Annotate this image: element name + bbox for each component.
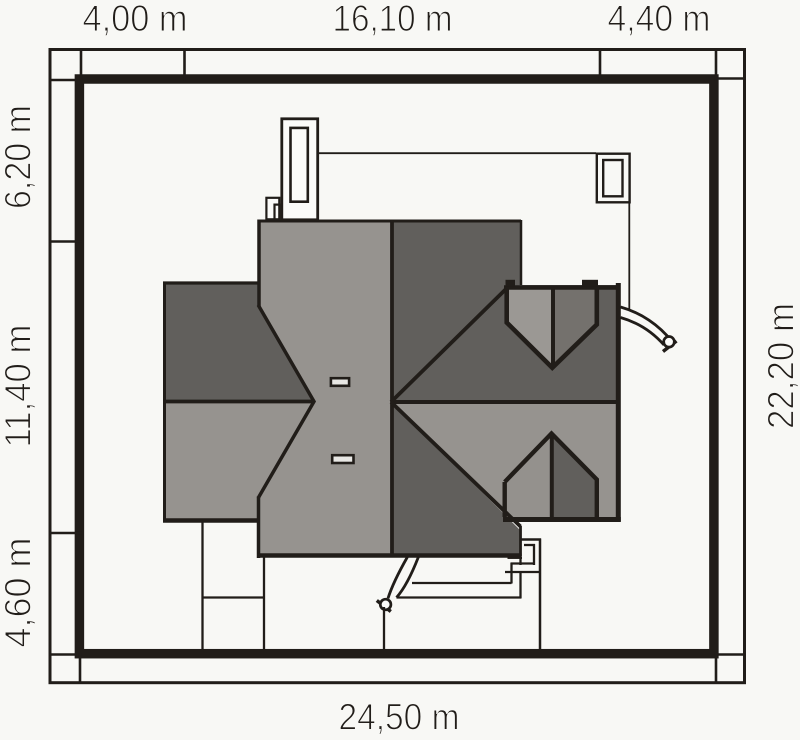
svg-text:4,60 m: 4,60 m bbox=[0, 538, 39, 648]
svg-text:11,40 m: 11,40 m bbox=[0, 325, 39, 448]
svg-text:16,10 m: 16,10 m bbox=[333, 0, 453, 39]
svg-text:4,40 m: 4,40 m bbox=[608, 0, 711, 39]
svg-text:4,00 m: 4,00 m bbox=[83, 0, 188, 39]
svg-text:6,20 m: 6,20 m bbox=[0, 105, 39, 209]
svg-text:24,50 m: 24,50 m bbox=[339, 696, 460, 738]
svg-text:22,20 m: 22,20 m bbox=[760, 303, 800, 429]
